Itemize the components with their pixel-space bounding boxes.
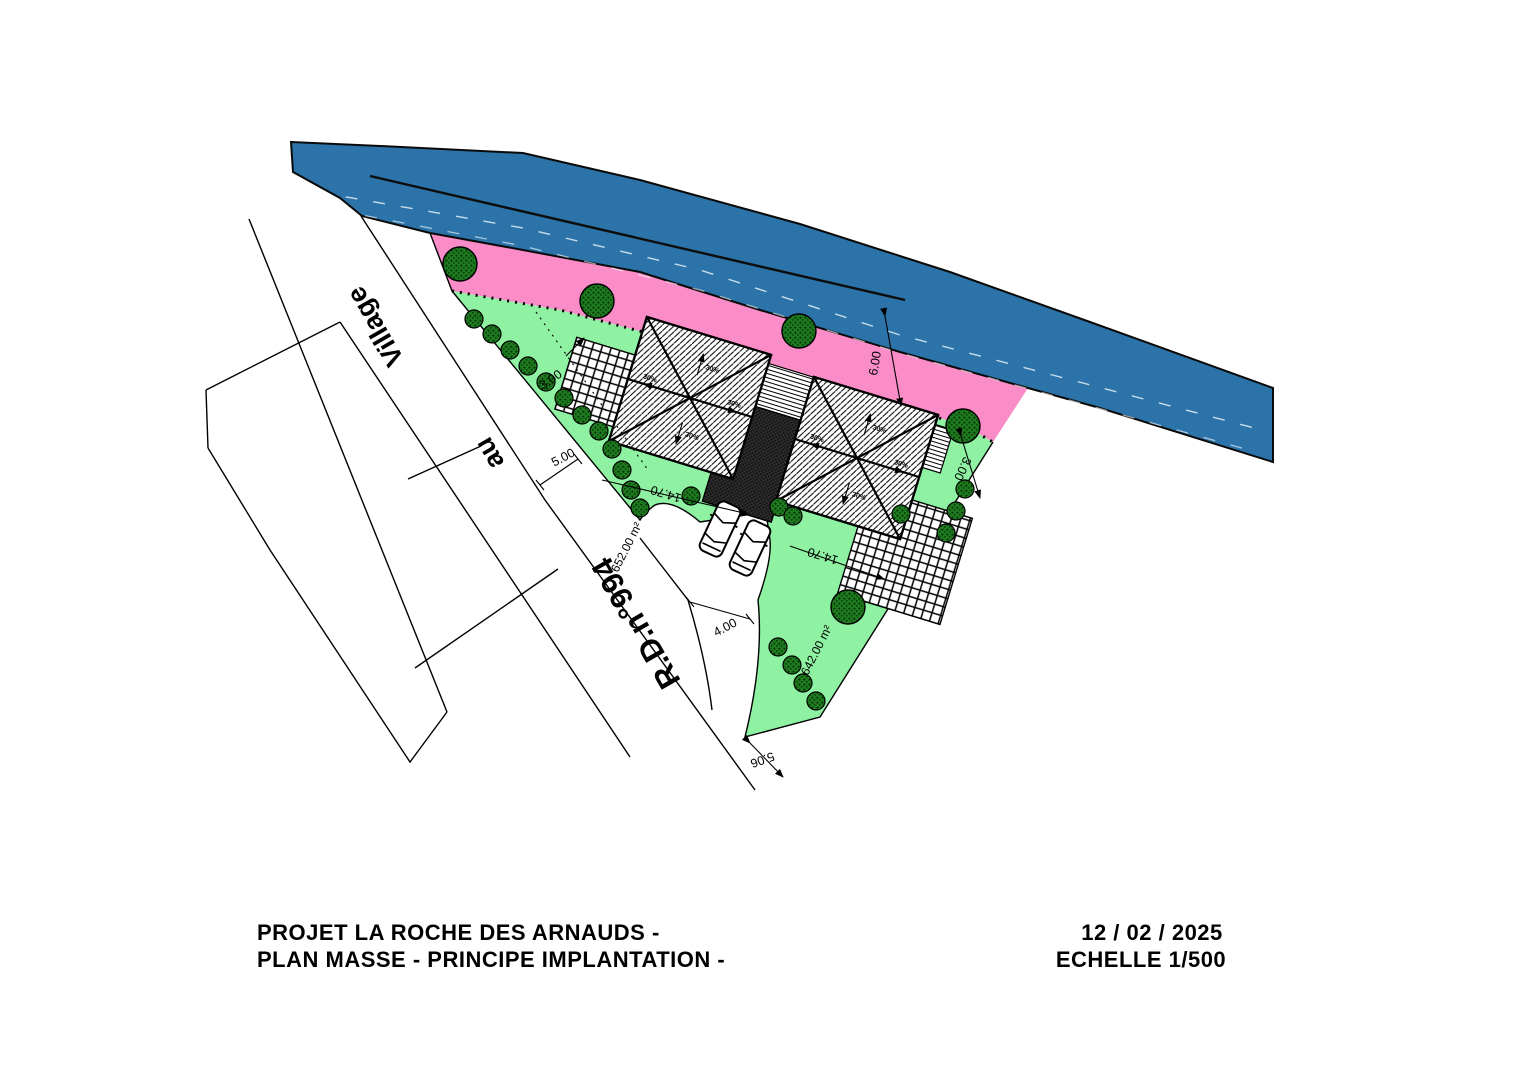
site-plan-drawing: 30% 30% 30% 30% 30% 30% 30% 30% bbox=[0, 0, 1526, 1080]
tree-icon bbox=[807, 692, 825, 710]
tree-icon bbox=[603, 440, 621, 458]
dim-label: 4.00 bbox=[711, 616, 739, 640]
dim-label: 5.06 bbox=[749, 749, 777, 770]
tree-icon bbox=[831, 590, 865, 624]
tree-icon bbox=[465, 310, 483, 328]
tree-icon bbox=[443, 247, 477, 281]
road-direction-word1: au bbox=[468, 432, 510, 474]
tree-icon bbox=[947, 502, 965, 520]
dim-road-setback: 5.00 bbox=[536, 446, 582, 490]
tree-icon bbox=[892, 505, 910, 523]
tree-icon bbox=[501, 341, 519, 359]
road-name-label: R.D.n°994 bbox=[584, 551, 687, 695]
tree-icon bbox=[590, 422, 608, 440]
tree-icon bbox=[622, 481, 640, 499]
dim-label: 5.00 bbox=[549, 446, 577, 470]
tree-icon bbox=[483, 325, 501, 343]
tree-icon bbox=[573, 406, 591, 424]
dim-access-width: 4.00 bbox=[686, 597, 754, 639]
road-direction-word2: Village bbox=[341, 282, 410, 372]
dim-access-frontage: 5.06 bbox=[749, 743, 783, 777]
plan-masse-sheet: 30% 30% 30% 30% 30% 30% 30% 30% bbox=[0, 0, 1526, 1080]
plan-date: 12 / 02 / 2025 bbox=[1081, 920, 1223, 945]
tree-icon bbox=[631, 499, 649, 517]
tree-icon bbox=[519, 357, 537, 375]
tree-icon bbox=[946, 409, 980, 443]
plan-scale: ECHELLE 1/500 bbox=[1056, 947, 1226, 972]
tree-icon bbox=[769, 638, 787, 656]
project-title-line1: PROJET LA ROCHE DES ARNAUDS - bbox=[257, 920, 660, 945]
tree-icon bbox=[956, 480, 974, 498]
tree-icon bbox=[555, 389, 573, 407]
tree-icon bbox=[613, 461, 631, 479]
tree-icon bbox=[784, 507, 802, 525]
tree-icon bbox=[782, 314, 816, 348]
project-title-line2: PLAN MASSE - PRINCIPE IMPLANTATION - bbox=[257, 947, 725, 972]
title-block: PROJET LA ROCHE DES ARNAUDS - PLAN MASSE… bbox=[257, 920, 1226, 972]
tree-icon bbox=[937, 524, 955, 542]
tree-icon bbox=[580, 284, 614, 318]
